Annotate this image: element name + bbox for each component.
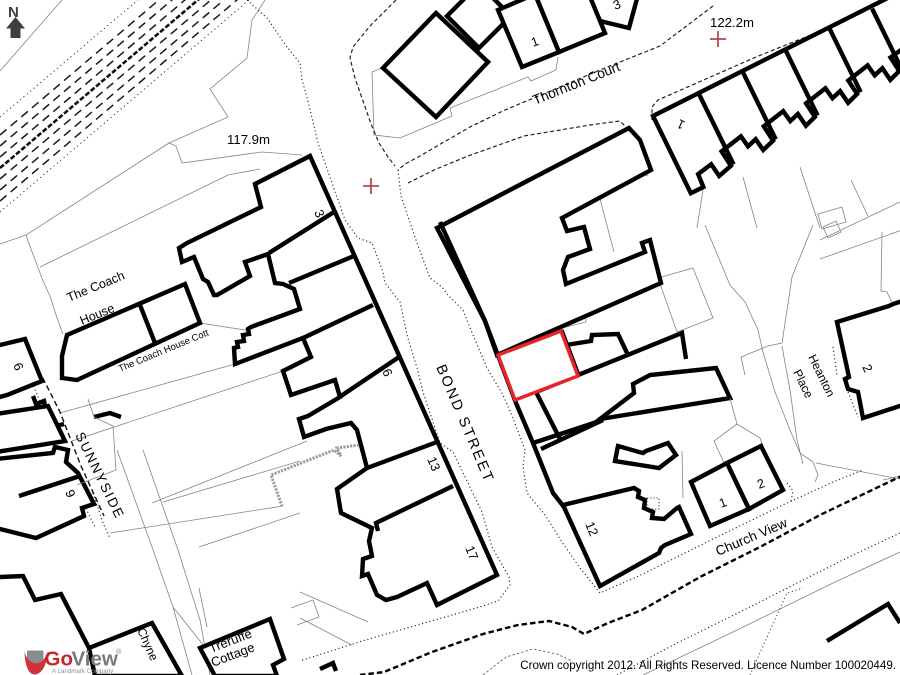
svg-text:N: N [8, 4, 19, 21]
svg-text:A Landmark Company: A Landmark Company [52, 668, 114, 675]
svg-text:117.9m: 117.9m [227, 132, 270, 147]
svg-text:®: ® [116, 648, 122, 656]
svg-text:Crown copyright 2012. All Righ: Crown copyright 2012. All Rights Reserve… [520, 659, 896, 672]
svg-text:122.2m: 122.2m [710, 15, 754, 30]
